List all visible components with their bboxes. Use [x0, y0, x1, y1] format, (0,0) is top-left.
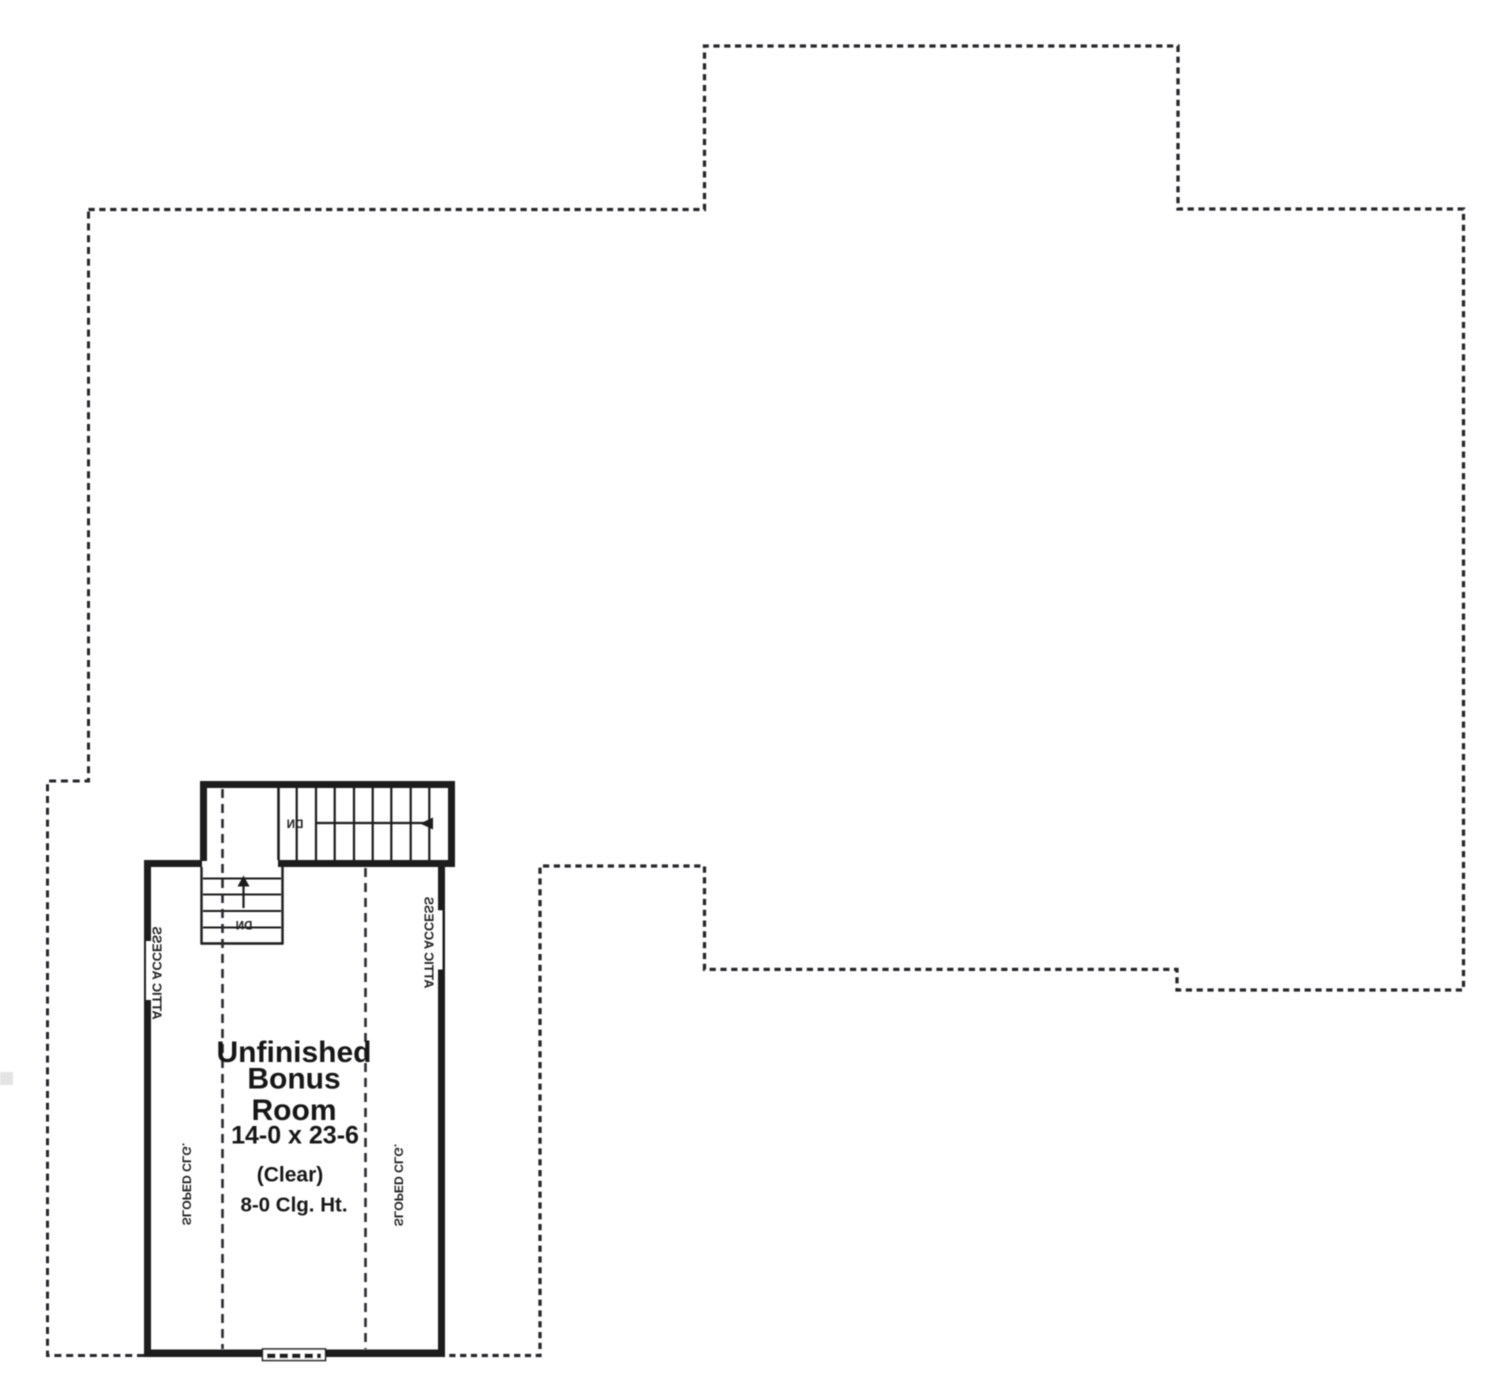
svg-text:DN: DN — [287, 819, 304, 831]
svg-text:Bonus: Bonus — [247, 1063, 340, 1096]
svg-text:ATTIC ACCESS: ATTIC ACCESS — [150, 926, 165, 1020]
svg-text:8-0 Clg. Ht.: 8-0 Clg. Ht. — [240, 1194, 347, 1217]
svg-text:(Clear): (Clear) — [257, 1164, 324, 1187]
svg-text:ATTIC ACCESS: ATTIC ACCESS — [422, 897, 436, 989]
svg-text:DN: DN — [236, 921, 253, 933]
svg-text:SLOPED CLG.: SLOPED CLG. — [180, 1143, 194, 1226]
svg-text:SLOPED CLG.: SLOPED CLG. — [392, 1144, 406, 1227]
svg-text:14-0 x 23-6: 14-0 x 23-6 — [231, 1122, 359, 1150]
